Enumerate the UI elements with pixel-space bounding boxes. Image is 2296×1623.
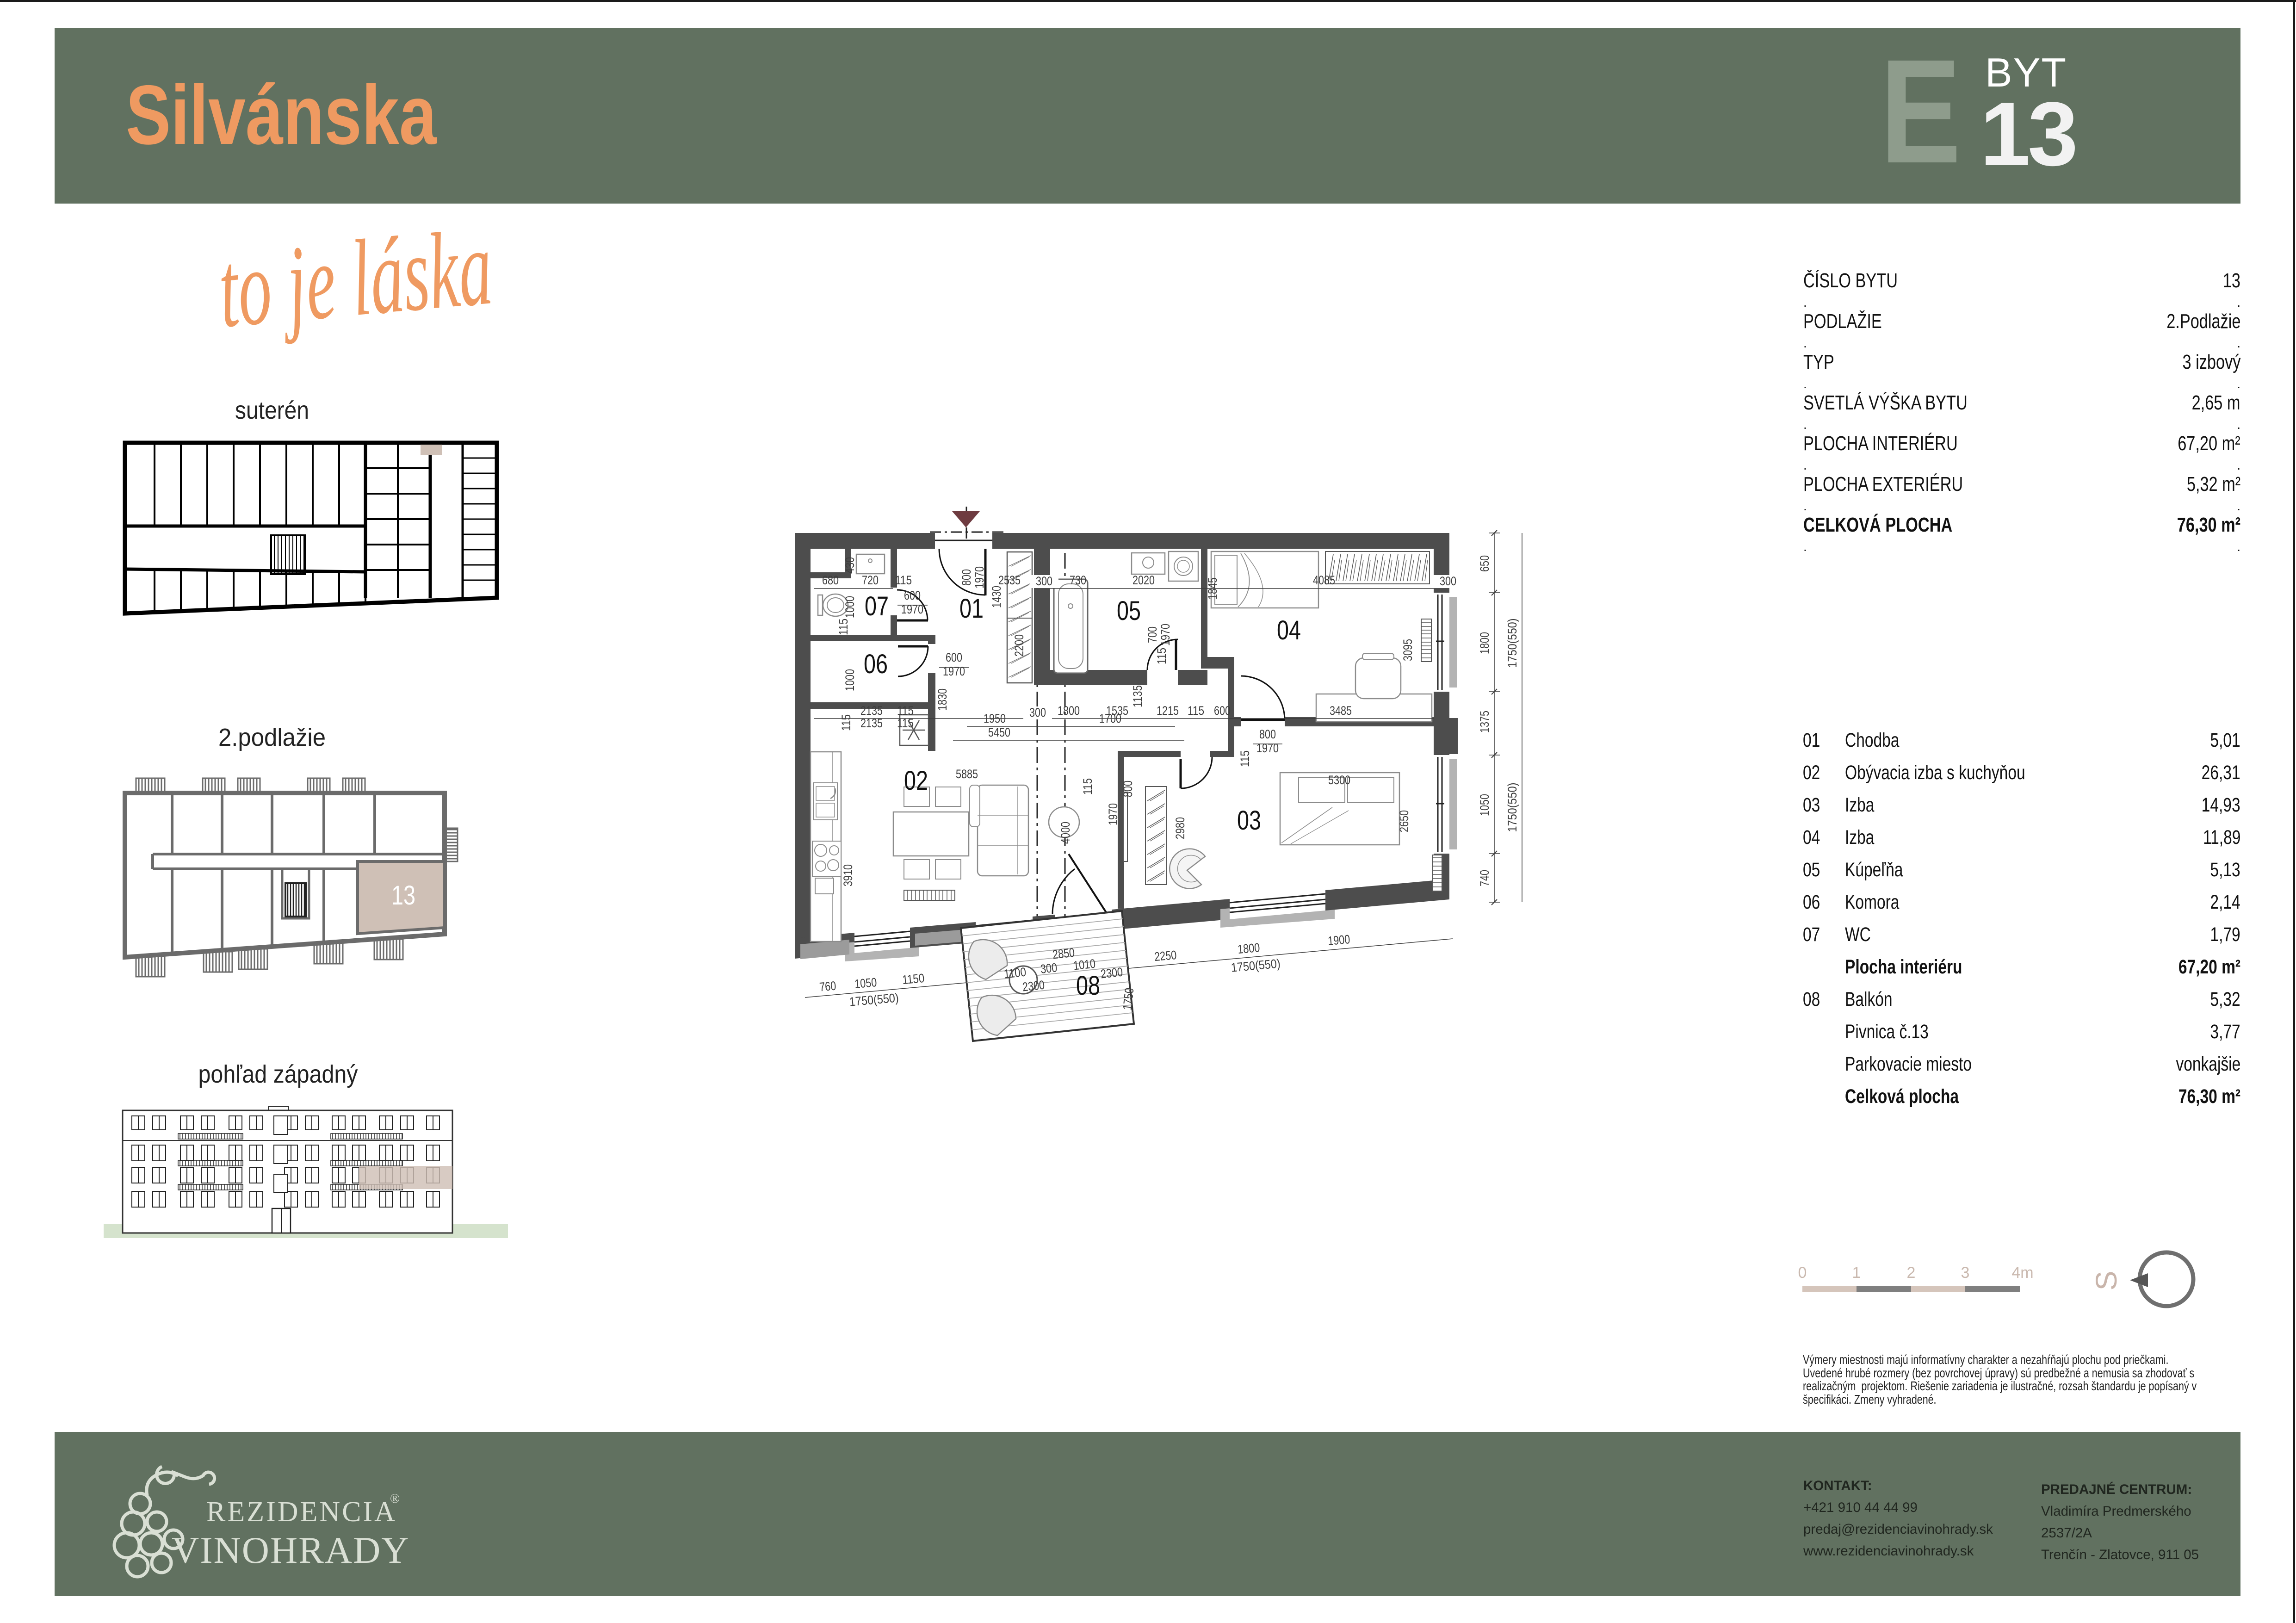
svg-text:2135: 2135 (860, 716, 883, 730)
svg-text:1750(550): 1750(550) (849, 991, 899, 1009)
svg-text:300: 300 (1029, 706, 1046, 719)
svg-text:800: 800 (1121, 781, 1135, 797)
svg-text:1: 1 (1852, 1264, 1861, 1282)
svg-text:REZIDENCIA: REZIDENCIA (206, 1496, 397, 1528)
svg-text:115: 115 (1155, 648, 1169, 664)
svg-text:06: 06 (864, 649, 888, 679)
svg-text:02: 02 (904, 766, 928, 796)
svg-text:suterén: suterén (235, 396, 309, 424)
svg-text:800: 800 (1259, 727, 1276, 741)
svg-text:115: 115 (1188, 704, 1204, 718)
svg-text:07: 07 (865, 591, 889, 621)
svg-text:600: 600 (946, 650, 962, 664)
svg-text:1800: 1800 (1058, 704, 1080, 718)
svg-text:1000: 1000 (843, 596, 857, 618)
svg-text:1950: 1950 (984, 712, 1006, 725)
svg-text:115: 115 (895, 573, 912, 587)
svg-text:3485: 3485 (1330, 704, 1352, 718)
svg-text:03: 03 (1237, 805, 1261, 836)
svg-text:05: 05 (1117, 596, 1141, 626)
svg-text:08: 08 (1076, 971, 1100, 1001)
svg-text:1430: 1430 (990, 586, 1003, 608)
svg-text:1010: 1010 (1073, 957, 1096, 973)
svg-text:2300: 2300 (1100, 965, 1124, 981)
svg-text:1970: 1970 (972, 566, 986, 588)
svg-text:2980: 2980 (1173, 817, 1187, 839)
svg-text:600: 600 (904, 588, 921, 602)
svg-text:1050: 1050 (1478, 794, 1491, 816)
svg-text:1830: 1830 (935, 688, 949, 711)
svg-text:720: 720 (862, 573, 879, 587)
svg-text:800: 800 (959, 569, 973, 586)
svg-text:115: 115 (1238, 750, 1252, 767)
svg-text:2020: 2020 (1133, 573, 1155, 587)
svg-text:3: 3 (1961, 1264, 1970, 1282)
svg-text:5450: 5450 (988, 725, 1010, 739)
svg-text:5885: 5885 (956, 767, 978, 781)
svg-text:115: 115 (839, 714, 853, 731)
svg-text:1150: 1150 (902, 971, 925, 987)
svg-text:1800: 1800 (1237, 941, 1260, 956)
svg-text:600: 600 (1214, 704, 1231, 718)
svg-text:01: 01 (959, 594, 984, 624)
svg-text:1100: 1100 (1003, 965, 1027, 981)
svg-text:2250: 2250 (1154, 948, 1177, 964)
svg-text:VINOHRADY: VINOHRADY (172, 1529, 410, 1571)
svg-text:115: 115 (897, 704, 914, 718)
svg-text:300: 300 (1036, 574, 1052, 588)
svg-text:730: 730 (1070, 573, 1086, 587)
svg-text:115: 115 (836, 619, 850, 635)
svg-text:2850: 2850 (1052, 946, 1076, 962)
svg-text:2.podlažie: 2.podlažie (218, 724, 326, 751)
svg-text:2135: 2135 (860, 704, 883, 718)
svg-text:1000: 1000 (843, 669, 857, 691)
svg-text:300: 300 (1440, 574, 1456, 588)
svg-text:4085: 4085 (1313, 573, 1335, 587)
svg-text:3910: 3910 (841, 864, 855, 886)
svg-text:1700: 1700 (1099, 712, 1121, 725)
svg-text:760: 760 (819, 979, 836, 994)
svg-text:430: 430 (843, 557, 857, 574)
svg-text:13: 13 (391, 880, 415, 911)
svg-text:300: 300 (1040, 960, 1058, 976)
svg-text:115: 115 (1081, 778, 1095, 795)
svg-text:1845: 1845 (1206, 577, 1219, 600)
svg-text:1750(550): 1750(550) (1231, 956, 1281, 974)
svg-text:0: 0 (1798, 1264, 1807, 1282)
svg-text:2: 2 (1907, 1264, 1916, 1282)
svg-text:4m: 4m (2011, 1264, 2033, 1282)
svg-text:2300: 2300 (1022, 978, 1046, 994)
svg-text:1750: 1750 (1120, 987, 1137, 1011)
svg-text:115: 115 (897, 716, 914, 730)
svg-text:740: 740 (1478, 870, 1491, 886)
svg-text:680: 680 (822, 573, 839, 587)
svg-text:®: ® (390, 1492, 400, 1506)
svg-text:1215: 1215 (1157, 704, 1179, 718)
svg-text:1050: 1050 (854, 975, 877, 991)
svg-text:pohľad západný: pohľad západný (198, 1060, 358, 1088)
svg-text:1970: 1970 (1158, 624, 1172, 646)
svg-text:1970: 1970 (1256, 741, 1279, 755)
svg-text:700: 700 (1145, 626, 1159, 643)
svg-text:5300: 5300 (1328, 773, 1350, 787)
svg-text:2535: 2535 (998, 573, 1021, 587)
svg-text:1375: 1375 (1478, 711, 1491, 733)
svg-text:650: 650 (1478, 555, 1491, 572)
svg-text:1750(550): 1750(550) (1505, 783, 1519, 832)
svg-text:1750(550): 1750(550) (1505, 619, 1519, 668)
svg-text:3095: 3095 (1401, 639, 1415, 661)
svg-text:1800: 1800 (1478, 632, 1491, 654)
svg-text:2200: 2200 (1012, 634, 1026, 657)
svg-text:1970: 1970 (901, 602, 923, 616)
svg-text:1970: 1970 (943, 664, 965, 678)
svg-text:1135: 1135 (1131, 685, 1145, 707)
svg-text:1900: 1900 (1327, 932, 1350, 948)
svg-text:4000: 4000 (1058, 822, 1072, 844)
svg-text:1970: 1970 (1106, 803, 1120, 825)
svg-text:S: S (2090, 1271, 2123, 1291)
svg-text:2650: 2650 (1397, 810, 1411, 832)
svg-text:04: 04 (1277, 615, 1301, 645)
